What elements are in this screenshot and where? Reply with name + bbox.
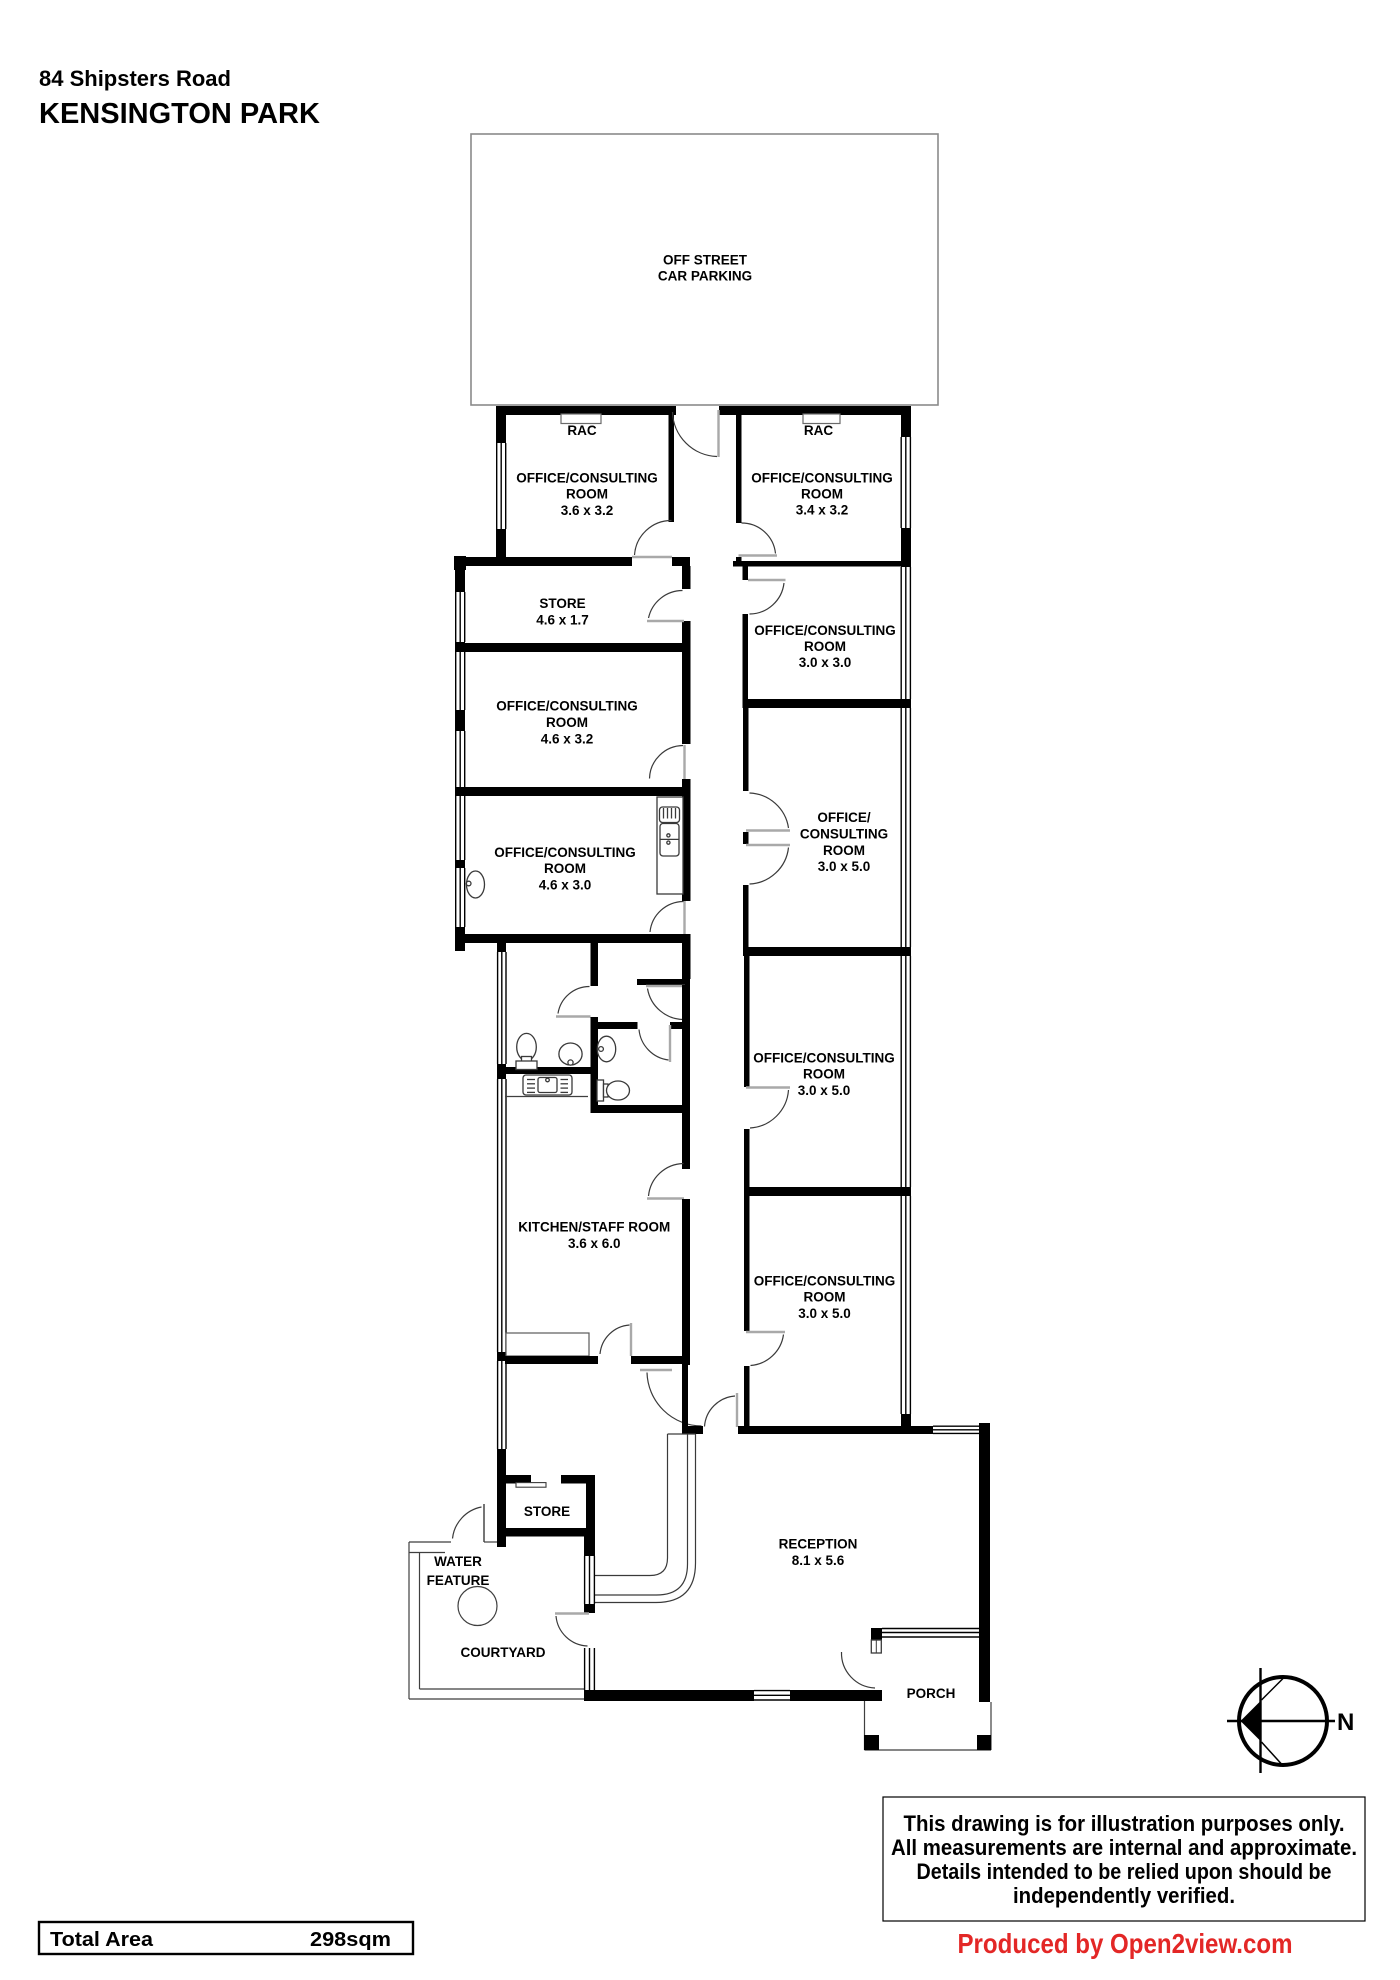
svg-text:Produced by Open2view.com: Produced by Open2view.com [958, 1928, 1293, 1959]
svg-text:RAC: RAC [567, 423, 596, 438]
svg-text:ROOM: ROOM [804, 639, 846, 654]
svg-text:OFFICE/: OFFICE/ [817, 810, 870, 825]
svg-text:ROOM: ROOM [823, 843, 865, 858]
svg-text:RECEPTION: RECEPTION [779, 1537, 858, 1552]
svg-text:4.6 x 1.7: 4.6 x 1.7 [536, 612, 589, 627]
svg-text:3.0 x 5.0: 3.0 x 5.0 [798, 1083, 851, 1098]
svg-text:independently verified.: independently verified. [1013, 1883, 1235, 1908]
svg-text:This drawing is for illustrati: This drawing is for illustration purpose… [904, 1811, 1345, 1836]
svg-text:OFFICE/CONSULTING: OFFICE/CONSULTING [754, 1274, 896, 1289]
svg-text:ROOM: ROOM [803, 1067, 845, 1082]
svg-text:CONSULTING: CONSULTING [800, 827, 888, 842]
svg-text:298sqm: 298sqm [310, 1929, 391, 1951]
svg-text:KENSINGTON PARK: KENSINGTON PARK [39, 98, 320, 130]
svg-text:8.1 x 5.6: 8.1 x 5.6 [792, 1553, 845, 1568]
svg-text:OFFICE/CONSULTING: OFFICE/CONSULTING [751, 471, 893, 486]
svg-text:Total Area: Total Area [50, 1929, 154, 1951]
svg-text:OFFICE/CONSULTING: OFFICE/CONSULTING [494, 845, 636, 860]
svg-text:COURTYARD: COURTYARD [460, 1645, 545, 1660]
svg-text:OFF STREET: OFF STREET [663, 253, 748, 268]
svg-text:OFFICE/CONSULTING: OFFICE/CONSULTING [754, 623, 896, 638]
svg-text:WATER: WATER [434, 1554, 482, 1569]
svg-text:3.6 x 6.0: 3.6 x 6.0 [568, 1236, 621, 1251]
svg-text:FEATURE: FEATURE [427, 1573, 490, 1588]
svg-text:4.6 x 3.0: 4.6 x 3.0 [539, 877, 592, 892]
svg-text:KITCHEN/STAFF ROOM: KITCHEN/STAFF ROOM [518, 1220, 670, 1235]
svg-text:ROOM: ROOM [804, 1290, 846, 1305]
svg-text:3.0 x 5.0: 3.0 x 5.0 [798, 1306, 851, 1321]
svg-text:STORE: STORE [539, 596, 585, 611]
svg-text:4.6 x 3.2: 4.6 x 3.2 [541, 731, 594, 746]
svg-text:OFFICE/CONSULTING: OFFICE/CONSULTING [753, 1051, 895, 1066]
svg-text:OFFICE/CONSULTING: OFFICE/CONSULTING [516, 471, 658, 486]
svg-text:PORCH: PORCH [907, 1686, 956, 1701]
svg-text:N: N [1337, 1709, 1354, 1736]
svg-text:ROOM: ROOM [546, 715, 588, 730]
svg-text:ROOM: ROOM [801, 487, 843, 502]
svg-text:3.4 x 3.2: 3.4 x 3.2 [796, 503, 849, 518]
svg-text:3.6 x 3.2: 3.6 x 3.2 [561, 503, 614, 518]
svg-text:Details intended to be relied: Details intended to be relied upon shoul… [917, 1859, 1332, 1884]
svg-text:OFFICE/CONSULTING: OFFICE/CONSULTING [496, 699, 638, 714]
svg-text:84 Shipsters Road: 84 Shipsters Road [39, 66, 231, 91]
svg-text:All measurements are internal: All measurements are internal and approx… [891, 1835, 1357, 1860]
svg-text:CAR PARKING: CAR PARKING [658, 269, 752, 284]
svg-text:ROOM: ROOM [544, 861, 586, 876]
svg-text:3.0 x 5.0: 3.0 x 5.0 [818, 859, 871, 874]
svg-text:STORE: STORE [524, 1504, 570, 1519]
svg-text:ROOM: ROOM [566, 487, 608, 502]
svg-text:3.0 x 3.0: 3.0 x 3.0 [799, 655, 852, 670]
svg-text:RAC: RAC [804, 423, 833, 438]
